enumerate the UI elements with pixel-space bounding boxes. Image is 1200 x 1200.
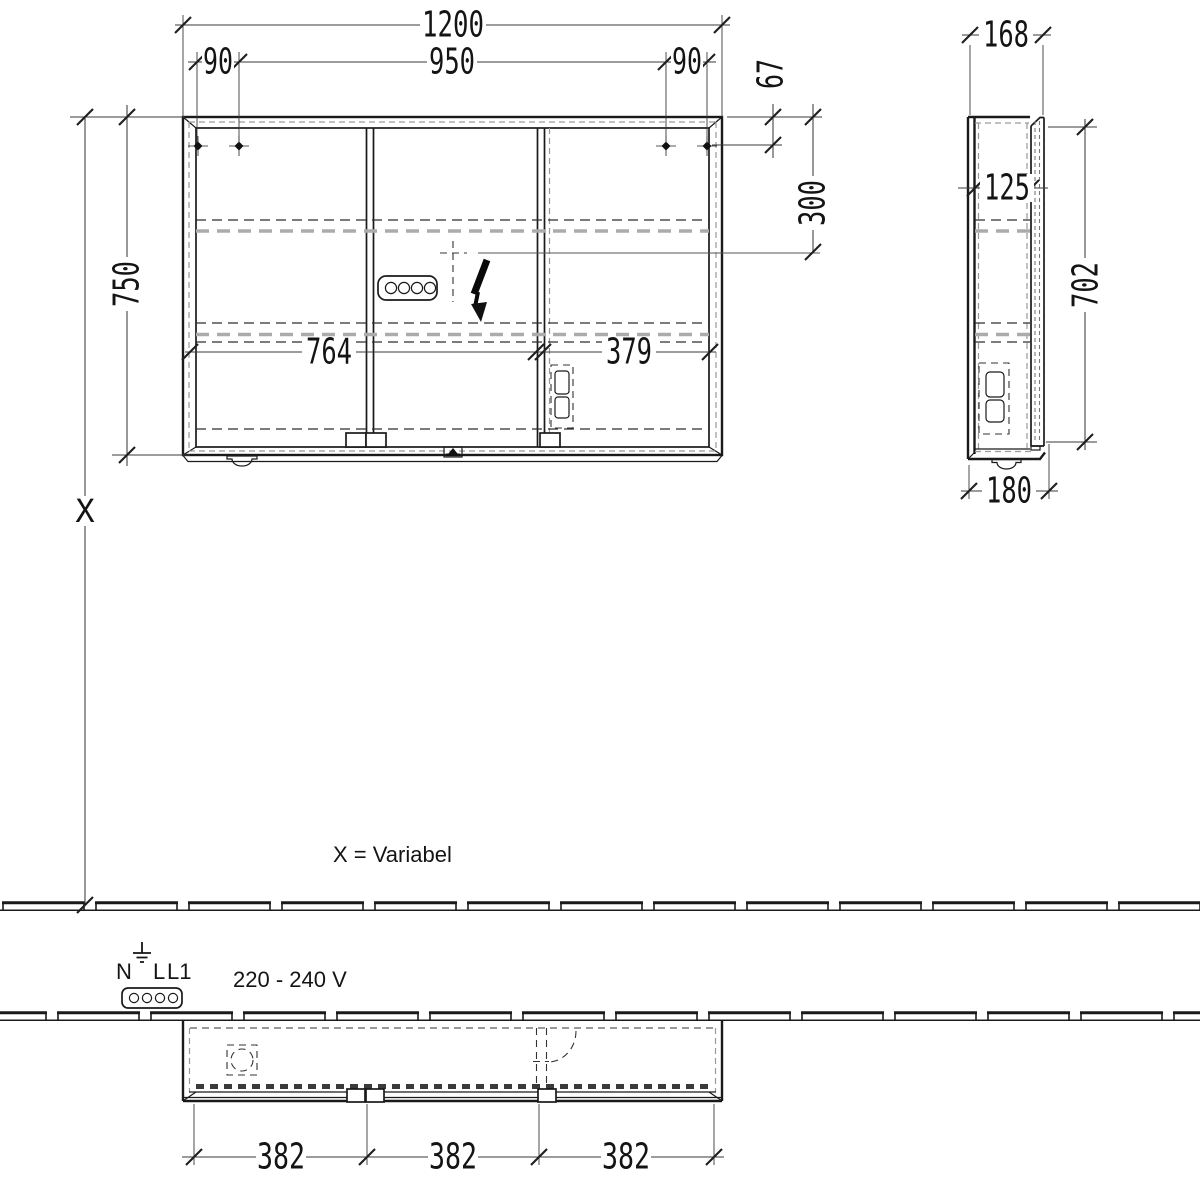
- front-view: 764 379: [182, 117, 820, 466]
- wall-break-lower: [0, 1011, 1200, 1021]
- dim-door2-width-label: 382: [429, 1137, 477, 1178]
- dim-bottom-depth-label: 180: [986, 471, 1032, 512]
- dim-screw-right-label: 90: [672, 42, 702, 83]
- ground-icon: [133, 942, 151, 962]
- dim-door1-width-label: 382: [257, 1137, 305, 1178]
- dim-height-label: 750: [107, 261, 148, 307]
- mirror-cabinet-drawing: 764 379 1200 90 950 90 750 X: [0, 0, 1200, 1200]
- side-view-dimensions: 168 125 702 180: [958, 15, 1107, 512]
- dim-total-width-label: 1200: [422, 5, 484, 46]
- dim-door3-width-label: 382: [602, 1137, 650, 1178]
- plan-view: 382 382 382: [182, 1020, 724, 1178]
- technical-drawing-canvas: 764 379 1200 90 950 90 750 X: [0, 0, 1200, 1200]
- door-swing-arc: [548, 1031, 576, 1062]
- variable-note: X = Variabel: [333, 842, 452, 867]
- terminal-n-label: N: [116, 959, 132, 984]
- door-handle-side: [992, 460, 1021, 470]
- dim-x-variable-label: X: [75, 492, 94, 530]
- plug-connector-small-icon: [122, 988, 182, 1008]
- wall-break-upper: [0, 901, 1200, 911]
- dim-total-depth-label: 168: [983, 15, 1029, 56]
- cable-bracket-icon: [444, 447, 462, 457]
- dim-top-to-outlet-label: 300: [793, 180, 834, 226]
- dim-left-section-label: 764: [306, 332, 352, 373]
- lightning-bolt-icon: [471, 260, 487, 322]
- dim-top-to-screws-label: 67: [751, 59, 792, 89]
- dim-door-height-label: 702: [1066, 262, 1107, 308]
- dim-inner-depth-label: 125: [984, 168, 1030, 209]
- dim-screw-left-label: 90: [203, 42, 233, 83]
- terminal-l1-label: L1: [167, 959, 191, 984]
- plug-connector-icon: [378, 276, 437, 300]
- voltage-label: 220 - 240 V: [233, 967, 347, 992]
- terminal-l-label: L: [153, 959, 165, 984]
- dim-screw-span-label: 950: [429, 42, 475, 83]
- mounting-hole-icon: [188, 136, 717, 156]
- dim-right-section-label: 379: [606, 332, 652, 373]
- electrical-connection: N L L1 220 - 240 V: [116, 942, 347, 1008]
